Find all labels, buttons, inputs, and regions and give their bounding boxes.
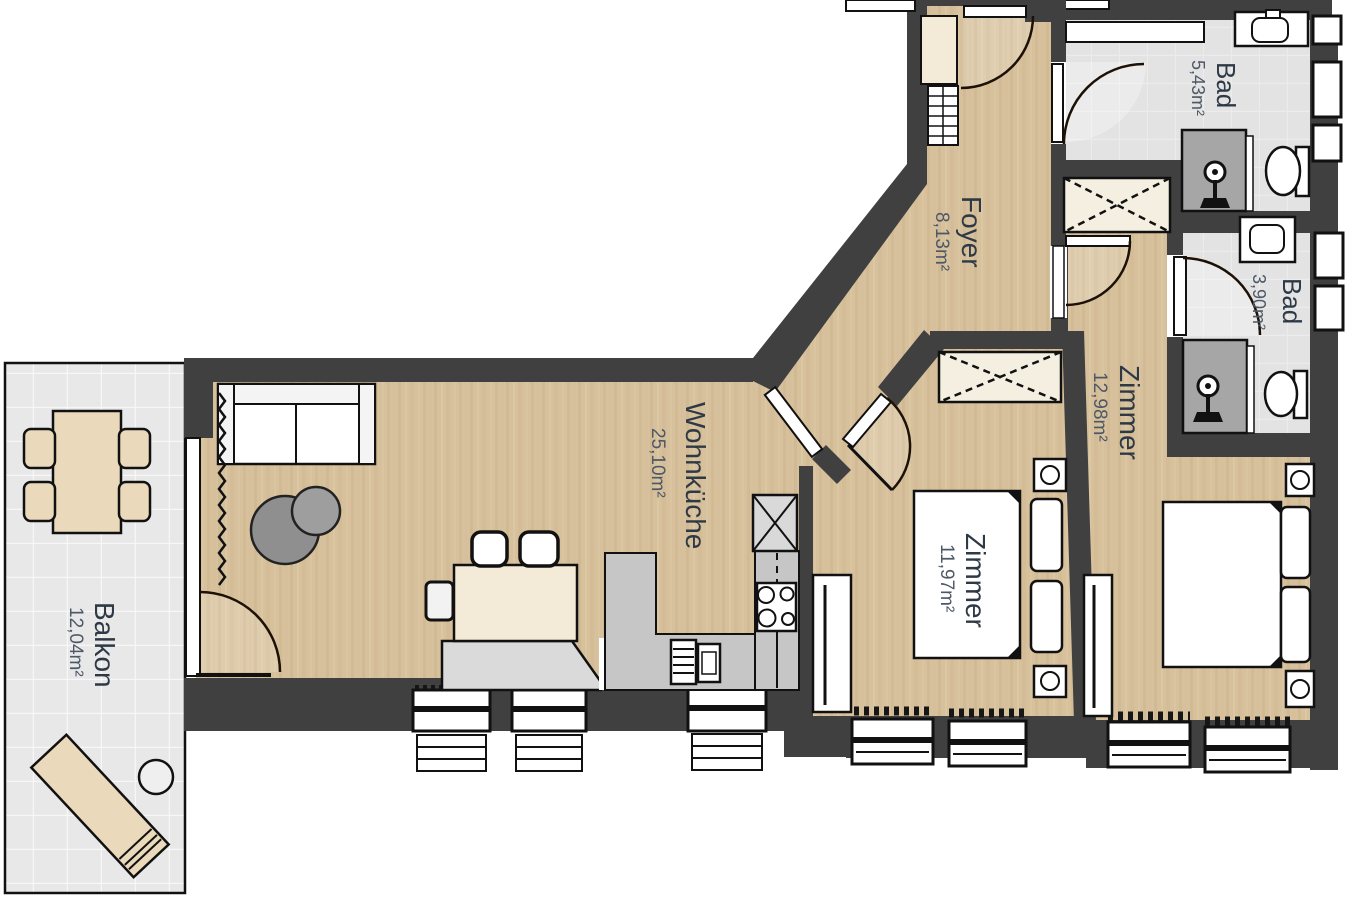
svg-text:Bad: Bad bbox=[1211, 62, 1241, 108]
svg-text:Wohnküche: Wohnküche bbox=[680, 402, 711, 549]
svg-text:12,98m²: 12,98m² bbox=[1089, 372, 1110, 442]
svg-text:5,43m²: 5,43m² bbox=[1188, 60, 1208, 116]
svg-text:Zimmer: Zimmer bbox=[960, 533, 991, 628]
svg-text:Foyer: Foyer bbox=[956, 196, 987, 268]
svg-text:Balkon: Balkon bbox=[89, 602, 120, 688]
svg-text:3,90m²: 3,90m² bbox=[1249, 274, 1269, 330]
svg-text:Bad: Bad bbox=[1277, 278, 1307, 324]
svg-text:Zimmer: Zimmer bbox=[1114, 365, 1145, 460]
svg-text:25,10m²: 25,10m² bbox=[647, 428, 668, 498]
svg-text:12,04m²: 12,04m² bbox=[65, 607, 86, 677]
svg-text:8,13m²: 8,13m² bbox=[931, 212, 952, 271]
svg-text:11,97m²: 11,97m² bbox=[936, 544, 957, 612]
